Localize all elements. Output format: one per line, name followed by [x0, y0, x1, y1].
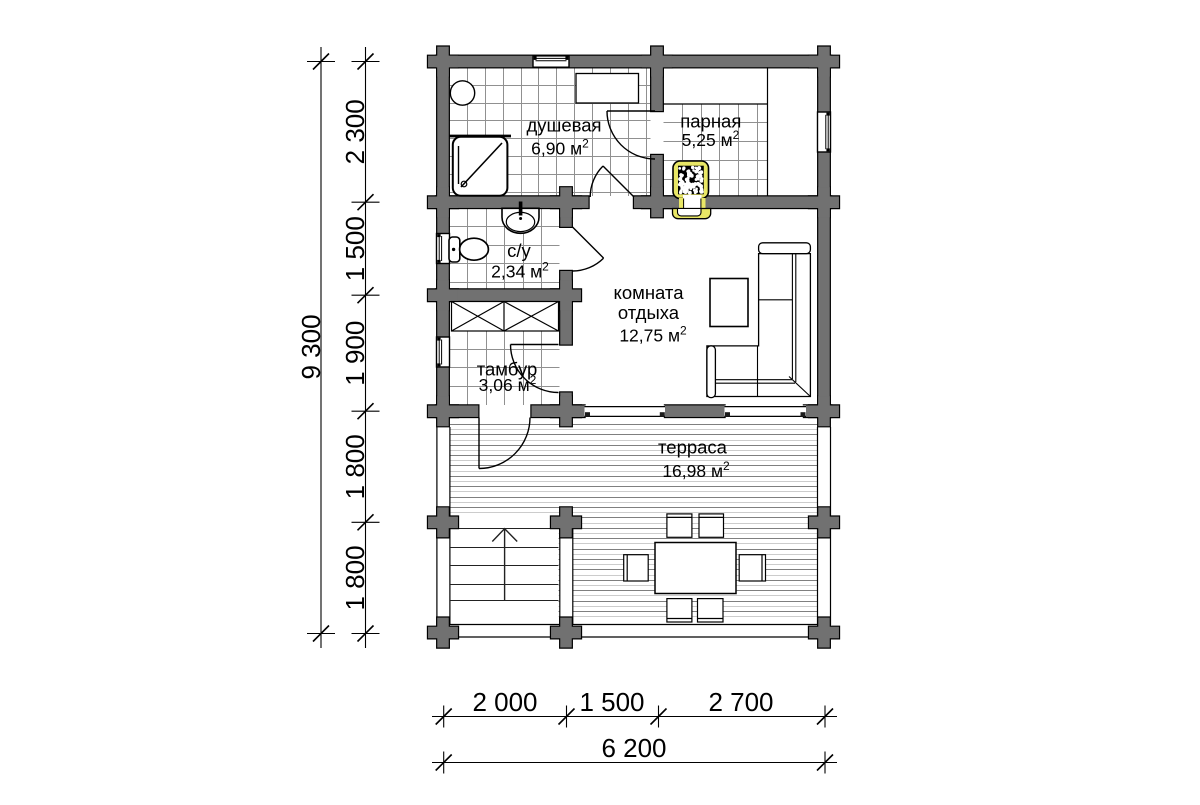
svg-text:душевая: душевая — [526, 115, 601, 136]
svg-text:6 200: 6 200 — [601, 733, 666, 763]
svg-text:3,06 м2: 3,06 м2 — [479, 373, 537, 395]
svg-text:9 300: 9 300 — [296, 314, 326, 379]
svg-text:терраса: терраса — [658, 437, 728, 458]
svg-text:16,98 м2: 16,98 м2 — [662, 459, 730, 481]
svg-text:12,75 м2: 12,75 м2 — [619, 324, 687, 346]
svg-text:отдыха: отдыха — [618, 302, 680, 323]
svg-text:2,34 м2: 2,34 м2 — [491, 259, 549, 281]
svg-text:1 500: 1 500 — [340, 216, 370, 281]
svg-text:комната: комната — [614, 282, 685, 303]
svg-text:6,90 м2: 6,90 м2 — [531, 137, 589, 159]
svg-text:2 300: 2 300 — [340, 99, 370, 164]
svg-text:2 700: 2 700 — [708, 687, 773, 717]
svg-text:1 900: 1 900 — [340, 321, 370, 386]
svg-text:1 500: 1 500 — [579, 687, 644, 717]
svg-text:5,25 м2: 5,25 м2 — [682, 128, 740, 150]
svg-text:1 800: 1 800 — [340, 434, 370, 499]
svg-text:1 800: 1 800 — [340, 545, 370, 610]
svg-text:2 000: 2 000 — [472, 687, 537, 717]
svg-text:с/у: с/у — [507, 240, 531, 261]
